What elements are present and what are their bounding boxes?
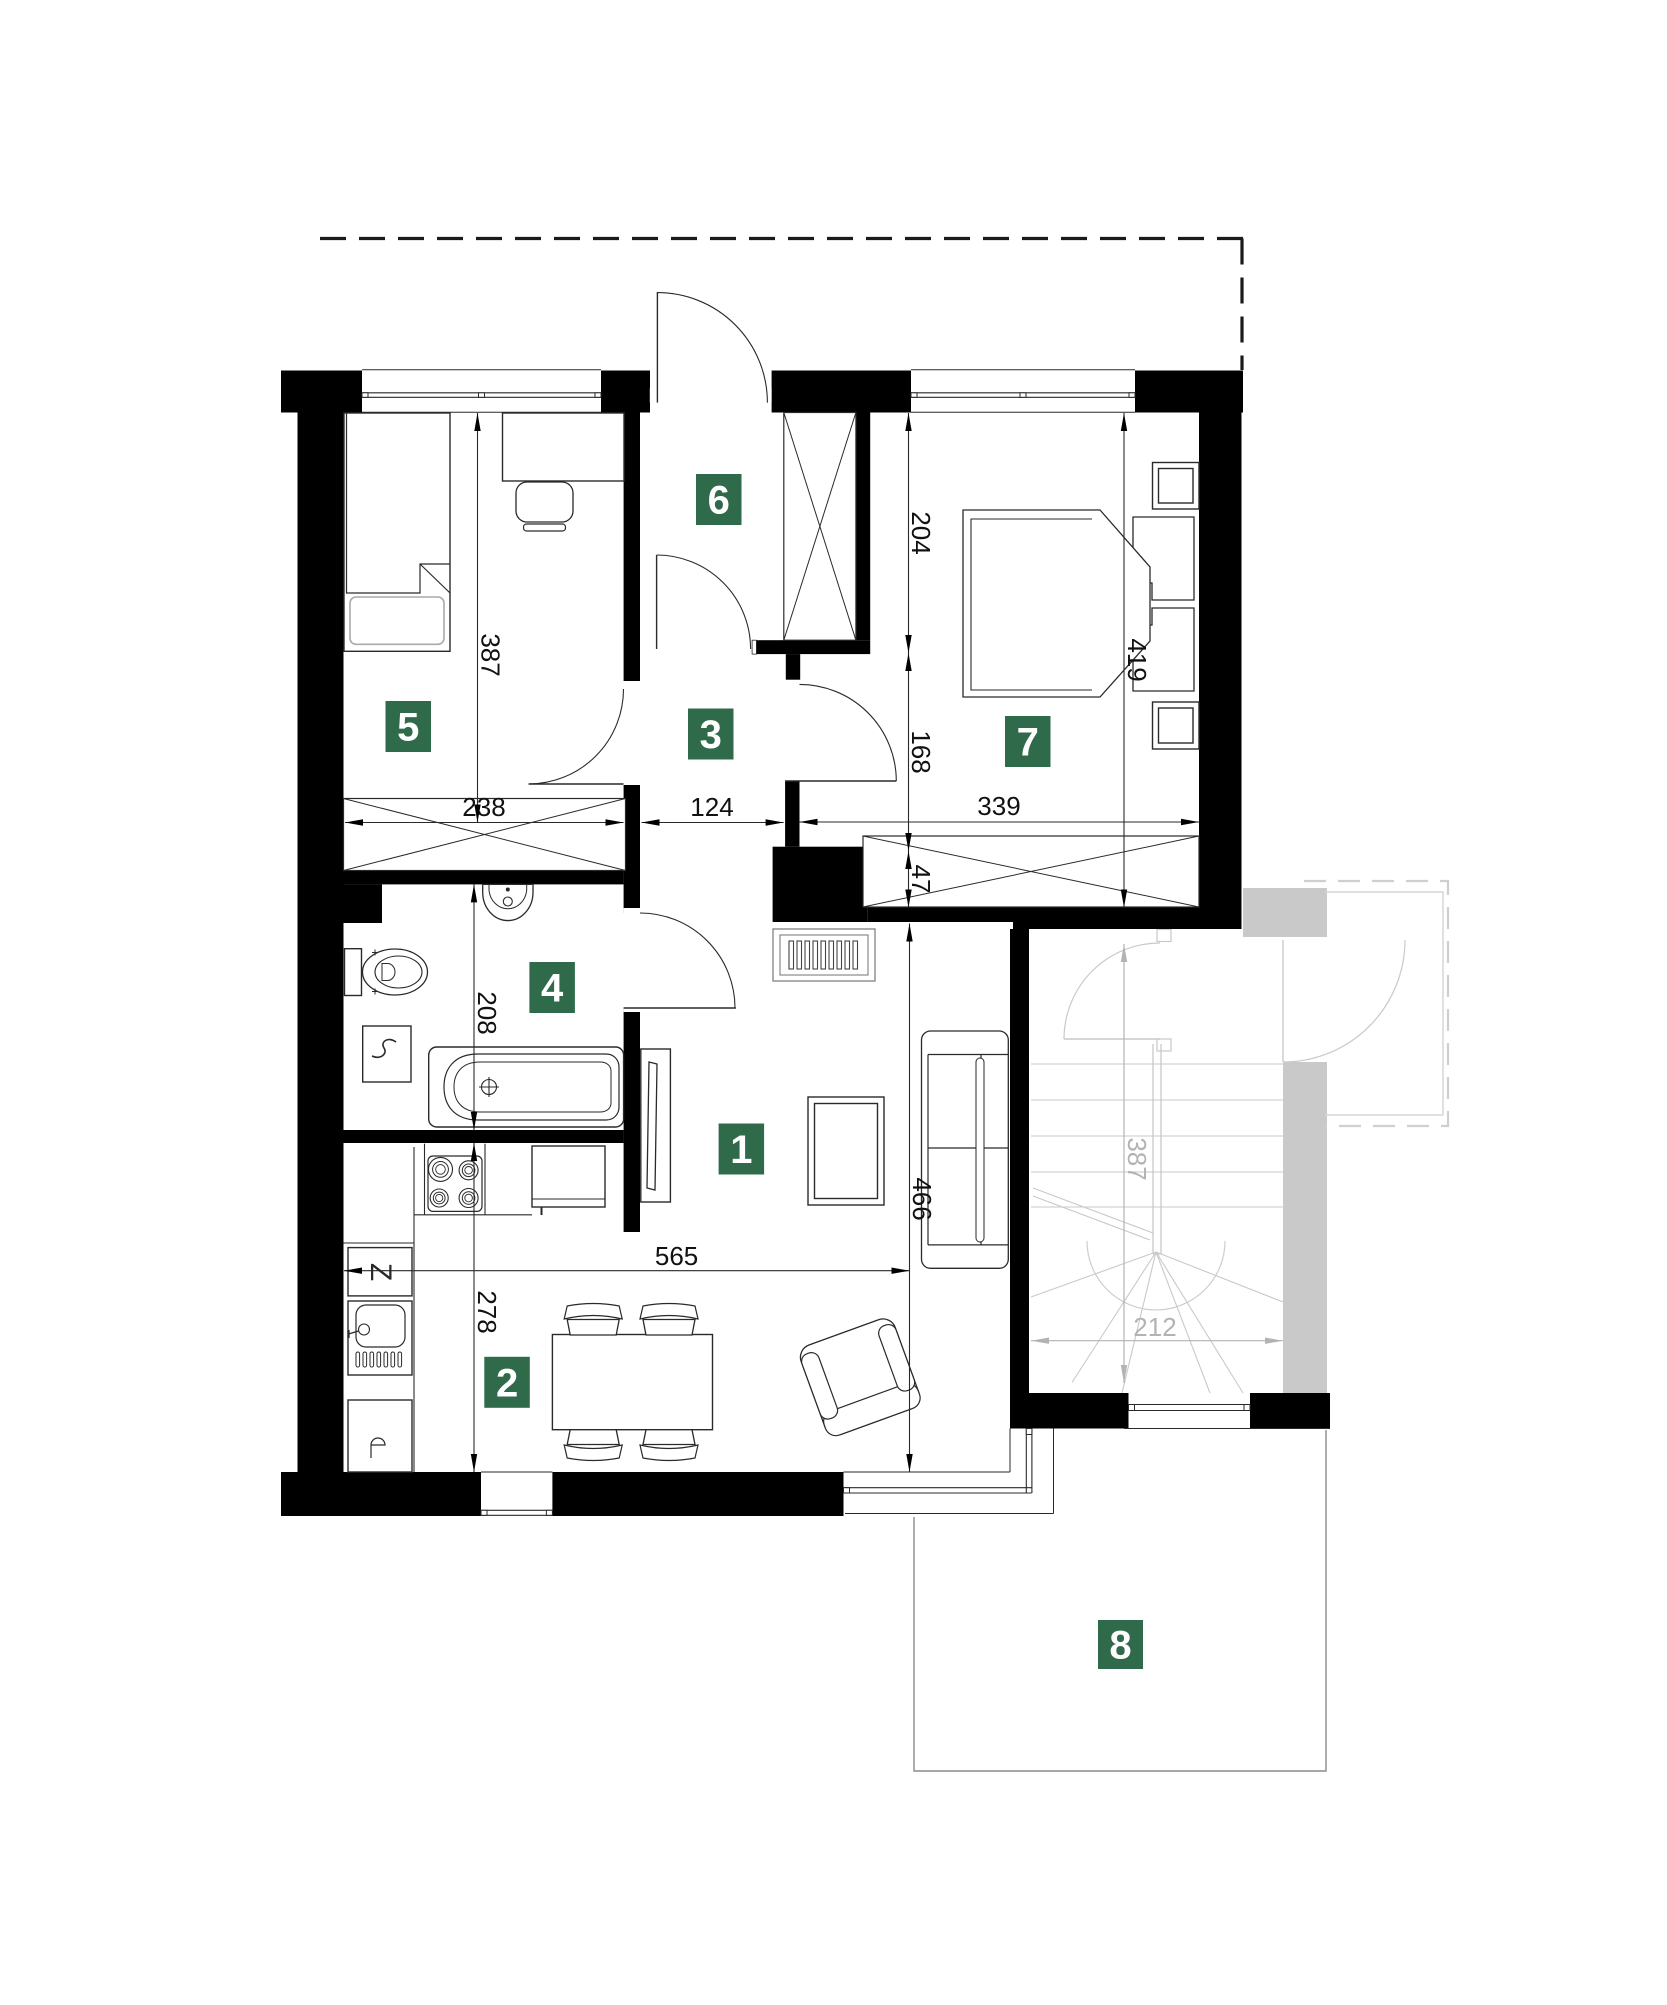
svg-text:212: 212 (1133, 1312, 1176, 1342)
svg-text:419: 419 (1122, 638, 1152, 681)
svg-text:278: 278 (472, 1290, 502, 1333)
svg-text:8: 8 (1109, 1624, 1131, 1668)
svg-text:6: 6 (708, 479, 730, 523)
svg-text:4: 4 (541, 967, 564, 1011)
svg-text:47: 47 (906, 865, 936, 894)
svg-text:Z: Z (364, 1263, 397, 1281)
svg-text:2: 2 (496, 1361, 518, 1405)
svg-text:3: 3 (700, 713, 722, 757)
svg-text:466: 466 (907, 1177, 937, 1220)
svg-text:238: 238 (462, 792, 505, 822)
svg-text:204: 204 (906, 511, 936, 554)
svg-text:387: 387 (1122, 1137, 1152, 1180)
svg-text:565: 565 (655, 1241, 698, 1271)
svg-text:1: 1 (730, 1128, 752, 1172)
svg-text:124: 124 (690, 792, 733, 822)
svg-text:7: 7 (1017, 721, 1039, 765)
svg-text:339: 339 (977, 791, 1020, 821)
svg-text:387: 387 (476, 633, 506, 676)
svg-text:208: 208 (472, 991, 502, 1034)
svg-text:168: 168 (906, 730, 936, 773)
svg-text:5: 5 (397, 706, 419, 750)
